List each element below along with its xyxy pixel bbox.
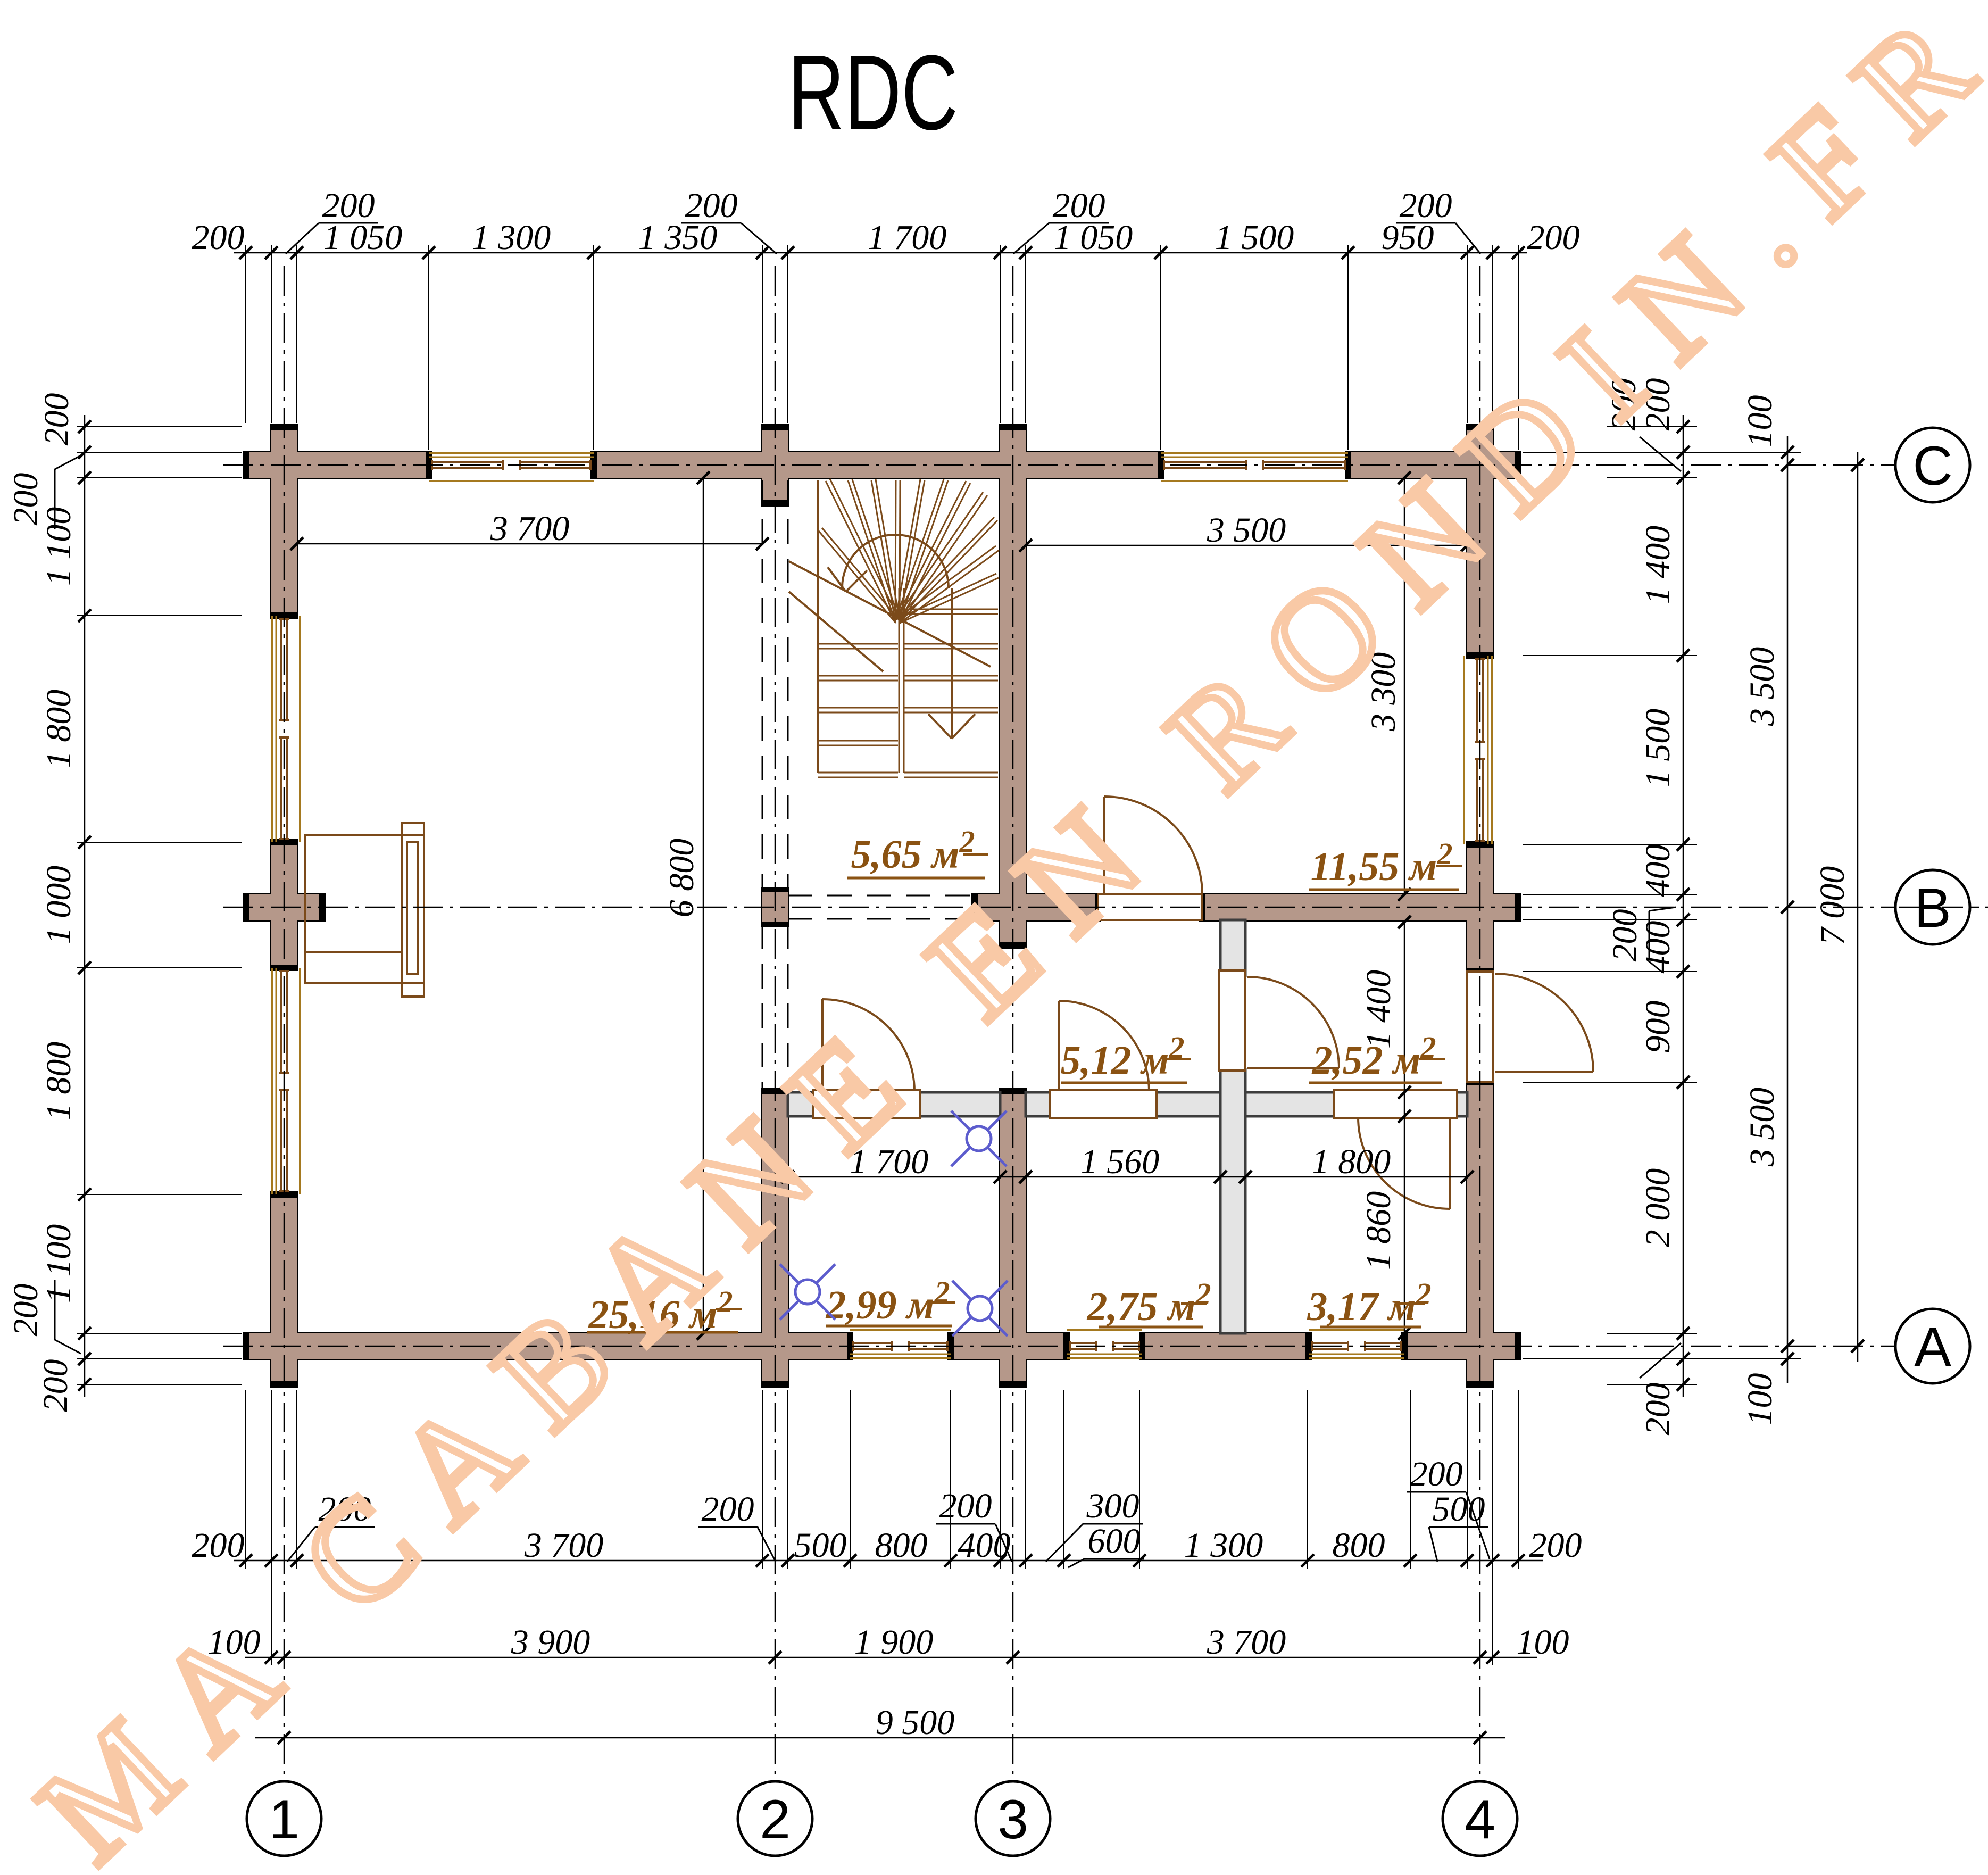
svg-text:1 300: 1 300	[472, 218, 551, 257]
svg-text:200: 200	[702, 1490, 754, 1529]
svg-text:3 900: 3 900	[511, 1623, 590, 1662]
svg-text:1 860: 1 860	[1359, 1191, 1398, 1271]
svg-text:500: 500	[794, 1526, 847, 1565]
svg-text:1 560: 1 560	[1080, 1142, 1160, 1181]
svg-text:RDC: RDC	[788, 34, 958, 152]
svg-text:200: 200	[1053, 186, 1105, 225]
svg-text:1 500: 1 500	[1638, 709, 1677, 788]
svg-text:100: 100	[1517, 1623, 1569, 1662]
svg-text:2,52 м2: 2,52 м2	[1311, 1030, 1436, 1083]
svg-text:4: 4	[1465, 1789, 1495, 1851]
svg-text:5,12 м2: 5,12 м2	[1060, 1030, 1184, 1083]
svg-text:5,65 м2: 5,65 м2	[851, 824, 975, 877]
svg-text:200: 200	[685, 186, 738, 225]
svg-text:7 000: 7 000	[1813, 866, 1852, 945]
svg-text:200: 200	[192, 218, 245, 257]
svg-text:200: 200	[37, 393, 76, 446]
svg-text:800: 800	[875, 1526, 928, 1565]
svg-text:200: 200	[192, 1526, 245, 1565]
svg-text:B: B	[1914, 877, 1951, 939]
svg-text:1 400: 1 400	[1359, 970, 1398, 1049]
svg-text:600: 600	[1088, 1522, 1141, 1561]
svg-text:200: 200	[1527, 218, 1580, 257]
svg-text:1 900: 1 900	[854, 1623, 934, 1662]
svg-text:200: 200	[6, 473, 45, 526]
svg-text:1 000: 1 000	[39, 866, 78, 945]
svg-text:200: 200	[1529, 1526, 1582, 1565]
svg-text:200: 200	[36, 1359, 75, 1412]
svg-text:1 800: 1 800	[1312, 1142, 1391, 1181]
svg-text:1 700: 1 700	[868, 218, 947, 257]
svg-text:200: 200	[1410, 1455, 1463, 1494]
svg-text:200: 200	[6, 1284, 45, 1337]
svg-text:1 400: 1 400	[1638, 526, 1677, 605]
svg-text:1 500: 1 500	[1215, 218, 1294, 257]
svg-text:1 800: 1 800	[39, 690, 78, 769]
svg-text:200: 200	[939, 1487, 992, 1525]
svg-text:3 700: 3 700	[524, 1526, 604, 1565]
svg-text:3 700: 3 700	[1207, 1623, 1286, 1662]
svg-text:200: 200	[1606, 909, 1644, 962]
svg-text:2: 2	[760, 1789, 791, 1851]
svg-text:2 000: 2 000	[1638, 1168, 1677, 1248]
svg-text:1 300: 1 300	[1184, 1526, 1263, 1565]
svg-text:400: 400	[958, 1526, 1011, 1565]
svg-text:A: A	[1914, 1316, 1951, 1378]
svg-text:300: 300	[1086, 1487, 1139, 1525]
svg-text:3 700: 3 700	[490, 509, 570, 548]
svg-text:C: C	[1912, 435, 1952, 497]
svg-text:200: 200	[1400, 186, 1452, 225]
svg-text:200: 200	[322, 186, 375, 225]
svg-text:2,99 м2: 2,99 м2	[825, 1275, 950, 1328]
svg-text:11,55 м2: 11,55 м2	[1311, 836, 1453, 889]
svg-text:9 500: 9 500	[876, 1703, 955, 1742]
svg-text:3 500: 3 500	[1207, 511, 1286, 550]
svg-text:200: 200	[1638, 1383, 1677, 1436]
svg-text:1 800: 1 800	[39, 1042, 78, 1121]
svg-text:100: 100	[1741, 395, 1779, 448]
svg-text:900: 900	[1638, 1001, 1677, 1053]
svg-text:100: 100	[1741, 1373, 1779, 1426]
svg-text:3 500: 3 500	[1743, 647, 1782, 727]
svg-text:6 800: 6 800	[662, 839, 701, 918]
svg-text:800: 800	[1333, 1526, 1385, 1565]
svg-text:400: 400	[1638, 844, 1677, 897]
svg-text:3: 3	[997, 1789, 1028, 1851]
svg-text:3 500: 3 500	[1743, 1088, 1782, 1167]
svg-text:1: 1	[269, 1789, 300, 1851]
